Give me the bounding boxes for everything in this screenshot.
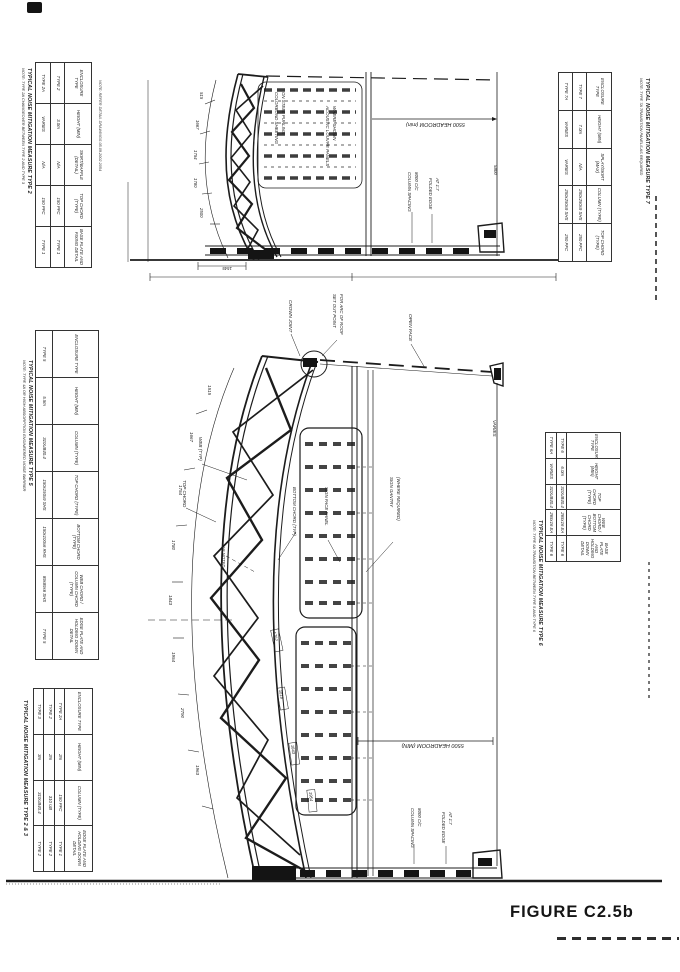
table-cell: 250 PFC xyxy=(559,224,573,262)
folded-edge-label: AT 1:7 xyxy=(435,177,440,191)
table-cell: TYPE 7A xyxy=(559,73,573,111)
dim-label-base: 1545 xyxy=(222,266,232,271)
setout-label: SET OUT POINT xyxy=(332,294,337,328)
sign-gantry-label: SIGN GANTRY xyxy=(389,477,394,508)
table-title-top-right: TYPICAL NOISE MITIGATION MEASURE TYPE 7 … xyxy=(630,78,650,208)
varies-label: VARIES xyxy=(492,420,497,438)
dim-label: 1954 xyxy=(171,652,176,663)
table-cell: TYPE 1 xyxy=(50,227,65,268)
table-cell: TYPE 6 xyxy=(556,433,567,459)
main-drawing-labels: CROWN JOINT SET OUT POINT FOR ARC OF ROO… xyxy=(168,294,497,848)
table-cell: 150 PFC xyxy=(54,780,64,826)
table-title-text: TYPICAL NOISE MITIGATION MEASURE TYPE 2 xyxy=(26,68,32,218)
table-cell: 250x250x9 SHS xyxy=(559,186,573,224)
table-cell: TYPE 2 xyxy=(44,826,54,872)
table-title-left-middle: TYPICAL NOISE MITIGATION MEASURE TYPE 5 … xyxy=(13,360,33,620)
table-cell: TYPE 6 xyxy=(556,536,567,562)
table-header-cell: HEIGHT (MIN) xyxy=(65,104,92,145)
table-cell: 7.0m xyxy=(572,110,586,148)
sheeting-label: ON STEEL PURLINS xyxy=(281,92,286,134)
chord-dim-label: 1843 xyxy=(290,744,296,755)
folded-edge-label: FOLDED EDGE xyxy=(441,812,446,844)
data-table: ENCLOSURE TYPEHEIGHT (MIN)COLUMN (TYPE)T… xyxy=(35,330,99,660)
table-title-text: TYPICAL NOISE MITIGATION MEASURE TYPE 7 xyxy=(644,78,650,208)
table-title-text: TYPICAL NOISE MITIGATION MEASURE TYPE 5 xyxy=(27,360,33,620)
crown-joint-label: CROWN JOINT xyxy=(288,300,293,334)
table-header-cell: BASE PLATE AND FIXING DETAIL xyxy=(65,227,92,268)
sign-face-label: SIGN FACE PANEL xyxy=(324,487,329,526)
dim-label: 1963 xyxy=(195,765,200,776)
figure-caption: FIGURE C2.5b xyxy=(510,903,634,922)
table-cell: TYPE 2 xyxy=(44,689,54,735)
dim-label: 1667 xyxy=(189,432,194,443)
table-cell: 5.5m xyxy=(36,378,53,425)
table-cell: 2m xyxy=(54,734,64,780)
top-drawing xyxy=(128,72,560,281)
as-noted-label: AS NOTED xyxy=(221,545,226,567)
dim-label: 2790 xyxy=(180,707,185,719)
table-cell: 3m xyxy=(34,734,44,780)
table-header-cell: COLUMN (TYPE) xyxy=(586,186,611,224)
table-top-left: ENCLOSURE TYPEHEIGHT (MIN)SKIRT/BAFFLE (… xyxy=(35,62,92,268)
table-note-text: NOTE: TYPE 6A TRANSITION BETWEEN TYPE 5 … xyxy=(532,520,537,705)
headroom-label: 5500 HEADROOM (min) xyxy=(406,121,465,127)
column-spacing-label: COLUMN SPACING xyxy=(410,808,415,848)
table-title-bottom-left: TYPICAL NOISE MITIGATION MEASURE TYPE 2 … xyxy=(14,700,28,850)
table-header-cell: ENCLOSURE TYPE xyxy=(567,433,621,459)
table-header-cell: WEB CHORD / BOTTOM CHORD (TYPE) xyxy=(567,510,621,536)
table-header-cell: ENCLOSURE TYPE xyxy=(65,689,93,735)
sheeting-label: COLORBOND SHEETING xyxy=(274,92,279,145)
chord-dim-label: 1762 xyxy=(272,631,279,642)
side-note-text: NOTE: REFER DETAIL DRAWINGS 05.09.2002 2… xyxy=(98,80,102,250)
table-cell: N/A xyxy=(50,145,65,186)
table-header-cell: TOP CHORD (TYPE) xyxy=(53,472,99,519)
table-title-text: TYPICAL NOISE MITIGATION MEASURE TYPE 2 … xyxy=(22,700,28,850)
table-header-cell: SPLAY/SKIRT (MAX) xyxy=(586,148,611,186)
table-cell: 310UB40.4 xyxy=(556,484,567,510)
dim-label: 2500 xyxy=(199,207,204,218)
table-cell: VARIES xyxy=(36,104,51,145)
table-header-cell: COLUMN (TYPE) xyxy=(65,780,93,826)
table-cell: 3.0m xyxy=(50,104,65,145)
table-cell: 6.0m xyxy=(556,458,567,484)
table-cell: 250 PFC xyxy=(572,224,586,262)
table-cell: 89x89x6 SHS xyxy=(36,566,53,613)
table-cell: 265x16 EA xyxy=(556,510,567,536)
data-table: ENCLOSURE TYPEHEIGHT (MIN)COLUMN (TYPE)E… xyxy=(33,688,93,872)
scanned-figure-page: 515 1667 1754 1780 2500 1545 COLORBOND S… xyxy=(0,0,680,972)
table-header-cell: BOTTOM CHORD (TYPE) xyxy=(53,519,99,566)
louvre-label: WHERE SHOWN xyxy=(332,106,337,141)
table-title-text: TYPICAL NOISE MITIGATION MEASURE TYPE 6 xyxy=(537,520,543,705)
data-table: ENCLOSURE TYPEHEIGHT (MIN)SPLAY/SKIRT (M… xyxy=(558,72,612,262)
table-top-right: ENCLOSURE TYPEHEIGHT (MIN)SPLAY/SKIRT (M… xyxy=(558,72,612,262)
data-table: ENCLOSURE TYPEHEIGHT (MIN)TOP CHORD (TYP… xyxy=(545,432,621,562)
table-cell: TYPE 6A xyxy=(546,433,557,459)
table-cell: 150x100x6 RHS xyxy=(36,519,53,566)
table-cell: 250x250x9 SHS xyxy=(572,186,586,224)
chord-dim-label: 1818 xyxy=(278,689,285,700)
table-cell: TYPE 5 xyxy=(36,331,53,378)
folded-edge-label: FOLDED EDGE xyxy=(428,178,433,210)
table-header-cell: TOP CHORD (TYPE) xyxy=(586,224,611,262)
table-cell: TYPE 1 xyxy=(54,826,64,872)
table-header-cell: WEB CHORD / COLUMN CHORD (TYPE) xyxy=(53,566,99,613)
dim-label: 515 xyxy=(199,92,204,100)
table-cell: 310UB40.4 xyxy=(34,780,44,826)
column-spacing-label: COLUMN SPACING xyxy=(407,172,412,212)
table-cell: VARIES xyxy=(559,110,573,148)
sign-gantry-label: (WHERE REQUIRED) xyxy=(396,477,401,521)
chord-dim-label: 1954 xyxy=(308,792,314,802)
table-cell: VARIES xyxy=(546,458,557,484)
table-cell: 265x16 EA xyxy=(546,510,557,536)
table-header-cell: ENCLOSURE TYPE xyxy=(586,73,611,111)
web-label: WEB (TYP) xyxy=(198,437,203,461)
main-drawing xyxy=(6,334,662,884)
table-cell: TYPE 6 xyxy=(546,536,557,562)
dim-label: 1780 xyxy=(193,178,198,188)
table-header-cell: TOP CHORD (TYPE) xyxy=(567,484,621,510)
table-header-cell: EDGE PLATE AND HOLDING DOWN DETAIL xyxy=(65,826,93,872)
table-cell: TYPE 2A xyxy=(36,63,51,104)
dim-label: 1754 xyxy=(193,150,198,160)
dim-label: 1515 xyxy=(207,385,212,396)
table-left-middle: ENCLOSURE TYPEHEIGHT (MIN)COLUMN (TYPE)T… xyxy=(35,330,99,660)
table-header-cell: HEIGHT (MIN) xyxy=(65,734,93,780)
table-cell: 150 PFC xyxy=(50,186,65,227)
table-header-cell: SKIRT/BAFFLE (DETAIL) xyxy=(65,145,92,186)
table-cell: VARIES xyxy=(559,148,573,186)
table-cell: 150x150x9 SHS xyxy=(36,472,53,519)
table-header-cell: TOP CHORD (TYPE) xyxy=(65,186,92,227)
table-cell: TYPE 2 xyxy=(34,826,44,872)
dim-label: 1843 xyxy=(168,595,173,606)
table-note-text: NOTE: TYPE 2A CHANGEOVER BETWEEN TYPE 2 … xyxy=(21,68,26,218)
table-cell: TYPE 5 xyxy=(36,613,53,660)
height-label: 5800 xyxy=(493,165,498,175)
table-cell: TYPE 2A xyxy=(54,689,64,735)
folded-edge-label: AT 1:7 xyxy=(448,811,453,825)
headroom-label: 5500 HEADROOM (MIN) xyxy=(401,742,464,748)
data-table: ENCLOSURE TYPEHEIGHT (MIN)SKIRT/BAFFLE (… xyxy=(35,62,92,268)
dim-label: 1780 xyxy=(171,540,176,551)
table-header-cell: ENCLOSURE TYPE xyxy=(65,63,92,104)
table-header-cell: ENCLOSURE TYPE xyxy=(53,331,99,378)
table-header-cell: HEIGHT (MIN) xyxy=(567,458,621,484)
table-cell: TYPE 2 xyxy=(50,63,65,104)
table-cell: TYPE 1 xyxy=(36,227,51,268)
table-note-text: NOTE: TYPE 4A OR HIGH ABSORPTION ENGINEE… xyxy=(22,360,27,620)
table-right-middle: ENCLOSURE TYPEHEIGHT (MIN)TOP CHORD (TYP… xyxy=(545,432,621,562)
table-header-cell: COLUMN (TYPE) xyxy=(53,425,99,472)
table-cell: N/A xyxy=(36,145,51,186)
table-cell: TYPE 3 xyxy=(34,689,44,735)
dim-label: 1667 xyxy=(195,120,200,130)
table-side-note-top-left: NOTE: REFER DETAIL DRAWINGS 05.09.2002 2… xyxy=(94,80,102,250)
table-header-cell: BASE PLATE AND HOLDING DOWN DETAIL xyxy=(567,536,621,562)
table-header-cell: HEIGHT (MIN) xyxy=(53,378,99,425)
table-header-cell: EDGE PLATE AND HOLDING DOWN DETAIL xyxy=(53,613,99,660)
bottom-chord-label: BOTTOM CHORD (TYP) xyxy=(292,487,297,536)
table-cell: 310UB40.4 xyxy=(546,484,557,510)
open-face-label: OPEN FACE xyxy=(407,314,413,342)
table-title-right-middle: TYPICAL NOISE MITIGATION MEASURE TYPE 6 … xyxy=(525,520,543,705)
column-spacing-label: 8000 C/C xyxy=(414,172,419,191)
table-header-cell: HEIGHT (MIN) xyxy=(586,110,611,148)
louvre-label: ACOUSTIC LOUVRE PANELS xyxy=(325,105,330,166)
table-cell: 150 PFC xyxy=(36,186,51,227)
column-spacing-label: 8000 C/C xyxy=(417,808,422,827)
setout-label: FOR ARC OF ROOF xyxy=(339,294,344,335)
table-cell: TYPE 7 xyxy=(572,73,586,111)
table-title-top-left: TYPICAL NOISE MITIGATION MEASURE TYPE 2 … xyxy=(12,68,32,218)
dim-label: 1754 xyxy=(178,485,183,496)
table-cell: 2m xyxy=(44,734,54,780)
table-cell: N/A xyxy=(572,148,586,186)
table-bottom-left: ENCLOSURE TYPEHEIGHT (MIN)COLUMN (TYPE)E… xyxy=(33,688,93,872)
table-cell: 310 UB xyxy=(44,780,54,826)
table-cell: 310UB40.4 xyxy=(36,425,53,472)
